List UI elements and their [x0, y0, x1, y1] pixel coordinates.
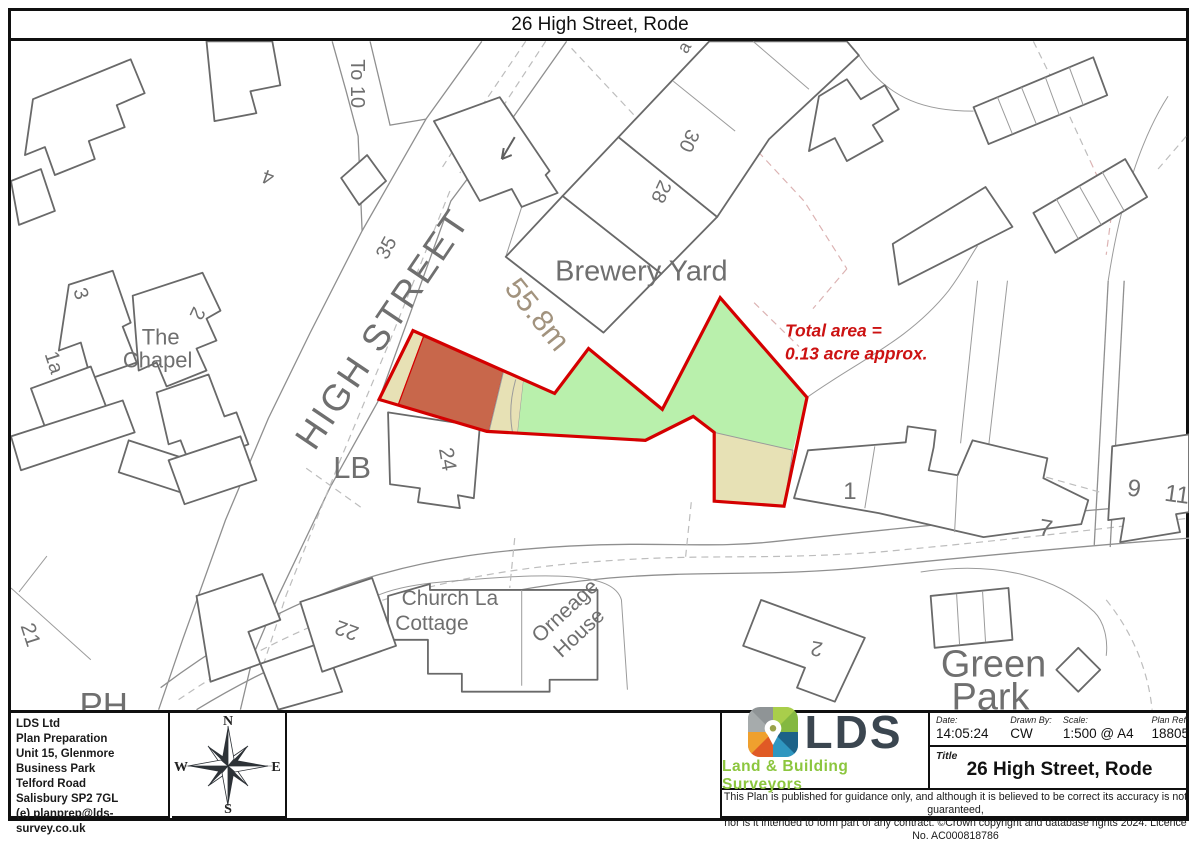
- boundary-dashed: [1106, 600, 1152, 710]
- map-label-a: a: [673, 41, 695, 57]
- scale-cell: Scale: 1:500 @ A4: [1057, 713, 1146, 745]
- compass-north-label: N: [223, 714, 233, 729]
- disclaimer-line1: This Plan is published for guidance only…: [722, 791, 1189, 817]
- map-label-4: 4: [259, 164, 277, 188]
- lds-logo-box: LDS Land & Building Surveyors: [720, 713, 930, 790]
- diamond-structure: [1056, 648, 1100, 692]
- scale-value: 1:500 @ A4: [1063, 726, 1146, 741]
- building-outline: [893, 187, 1013, 285]
- map-label-11: 11: [1163, 480, 1189, 510]
- map-label-1: 1: [843, 478, 856, 505]
- parcel-line: [961, 281, 978, 444]
- parcel-line: [989, 281, 1008, 448]
- parcel-line: [19, 556, 47, 592]
- map-label-church-la: Church La: [402, 587, 499, 610]
- building-outline: [434, 97, 558, 207]
- map-label-35: 35: [372, 233, 402, 263]
- compass-box: N E S W: [172, 713, 287, 818]
- map-label-to-10: To 10: [346, 59, 368, 108]
- title-block: Date: 14:05:24 Drawn By: CW Scale: 1:500…: [930, 713, 1189, 790]
- boundary-dashed-pink: [813, 269, 847, 309]
- map-label-park: Park: [952, 677, 1030, 710]
- garage-row: [931, 588, 1013, 648]
- date-cell: Date: 14:05:24: [930, 713, 1004, 745]
- map-label-chapel: Chapel: [123, 348, 193, 373]
- boundary-dashed: [510, 538, 515, 588]
- plan-ref-value: 18805: [1151, 726, 1189, 741]
- company-line: Unit 15, Glenmore Business Park: [16, 747, 168, 777]
- drawn-by-value: CW: [1010, 726, 1057, 741]
- side-lane-edge: [1094, 281, 1108, 545]
- building-outline: [809, 79, 899, 161]
- company-name: LDS Ltd: [16, 717, 168, 732]
- lds-logo-tagline: Land & Building Surveyors: [722, 758, 928, 794]
- boundary-dashed: [1158, 133, 1189, 169]
- building-outline: [341, 155, 386, 205]
- map-label-24: 24: [434, 446, 461, 473]
- site-plan-map: To 10 4 35 HIGH STREET Brewery Yard 30 2…: [11, 41, 1189, 710]
- disclaimer-line2: nor is it intended to form part of any c…: [722, 817, 1189, 843]
- plan-ref-label: Plan Ref:: [1151, 715, 1189, 725]
- drawn-by-cell: Drawn By: CW: [1004, 713, 1057, 745]
- map-label-1a: 1a: [40, 349, 68, 378]
- page-title: 26 High Street, Rode: [11, 11, 1189, 41]
- map-label-lb: LB: [333, 450, 371, 485]
- scale-label: Scale:: [1063, 715, 1146, 725]
- area-note-line1: Total area =: [785, 321, 882, 341]
- company-address-box: LDS Ltd Plan Preparation Unit 15, Glenmo…: [11, 713, 170, 818]
- compass-south-label: S: [224, 802, 232, 816]
- building-outline: [25, 59, 145, 175]
- lds-logo-icon: [748, 707, 798, 757]
- date-label: Date:: [936, 715, 1004, 725]
- map-label-brewery-yard: Brewery Yard: [555, 256, 727, 288]
- map-label-the: The: [142, 325, 180, 350]
- date-value: 14:05:24: [936, 726, 1004, 741]
- compass-rose-icon: N E S W: [172, 713, 285, 816]
- company-line: Telford Road: [16, 777, 168, 792]
- garage-row: [974, 57, 1108, 144]
- building-outline: [11, 169, 55, 225]
- company-line: Plan Preparation: [16, 732, 168, 747]
- map-canvas: To 10 4 35 HIGH STREET Brewery Yard 30 2…: [11, 41, 1189, 710]
- compass-east-label: E: [271, 760, 280, 775]
- plan-ref-cell: Plan Ref: 18805: [1145, 713, 1189, 745]
- boundary-dashed: [572, 48, 645, 126]
- compass-west-label: W: [174, 760, 188, 775]
- disclaimer: This Plan is published for guidance only…: [720, 790, 1189, 818]
- company-line: Salisbury SP2 7GL: [16, 792, 168, 807]
- area-note-line2: 0.13 acre approx.: [785, 344, 928, 364]
- boundary-dashed: [685, 502, 691, 560]
- building-outline: [743, 600, 865, 702]
- map-label-cottage: Cottage: [395, 612, 468, 635]
- building-outline: [207, 41, 281, 121]
- company-email: (e) planprep@lds-survey.co.uk: [16, 807, 168, 837]
- lds-logo-text: LDS: [805, 709, 903, 755]
- map-label-ph: PH: [80, 687, 129, 710]
- map-label-21: 21: [16, 620, 45, 649]
- lane-to-10-edge: [370, 41, 426, 125]
- drawn-by-label: Drawn By:: [1010, 715, 1057, 725]
- plan-title: 26 High Street, Rode: [930, 759, 1189, 781]
- building-outline: [169, 436, 257, 504]
